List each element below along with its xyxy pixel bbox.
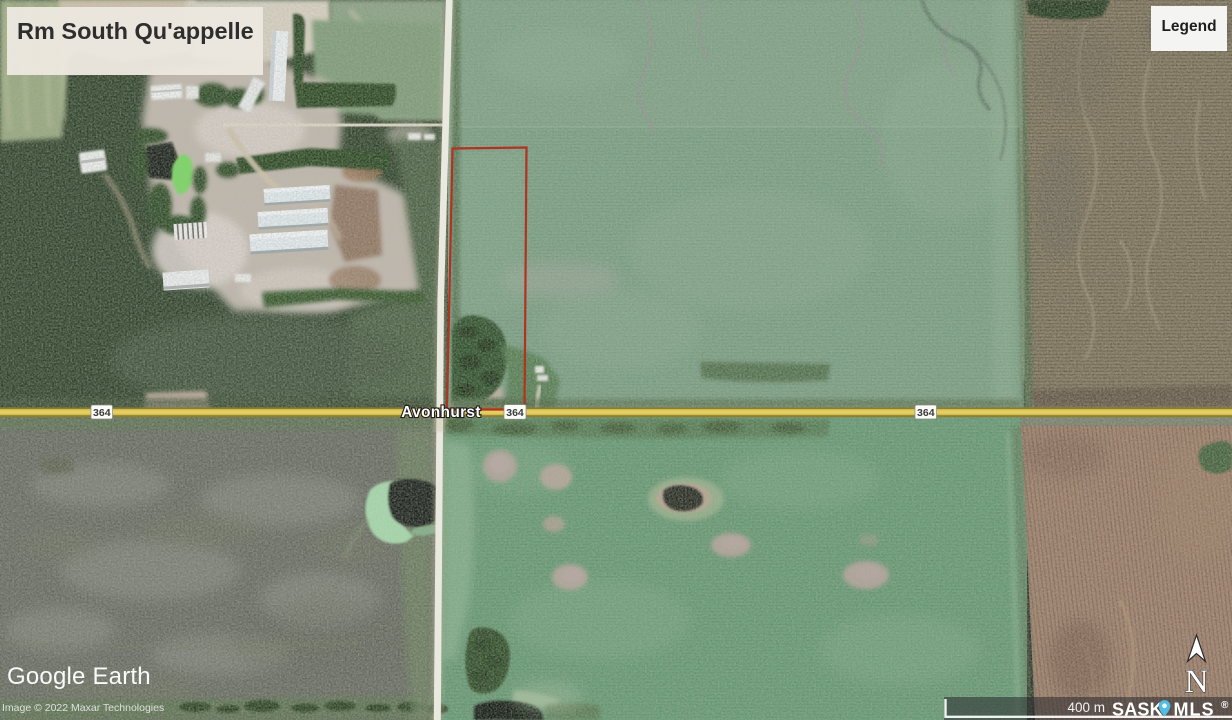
svg-text:Google Earth: Google Earth <box>7 663 151 690</box>
svg-text:N: N <box>1185 664 1209 700</box>
svg-text:400 m: 400 m <box>1067 700 1105 715</box>
svg-text:Legend: Legend <box>1161 18 1216 35</box>
svg-text:SASK: SASK <box>1112 700 1163 720</box>
svg-text:MLS: MLS <box>1174 700 1215 720</box>
svg-text:Image © 2022 Maxar Technologie: Image © 2022 Maxar Technologies <box>2 702 164 714</box>
svg-text:Avonhurst: Avonhurst <box>401 404 481 421</box>
svg-text:364: 364 <box>917 407 935 419</box>
svg-text:Rm South Qu'appelle: Rm South Qu'appelle <box>17 18 254 44</box>
svg-text:364: 364 <box>506 407 524 419</box>
svg-text:®: ® <box>1221 700 1229 711</box>
svg-text:364: 364 <box>93 407 111 419</box>
